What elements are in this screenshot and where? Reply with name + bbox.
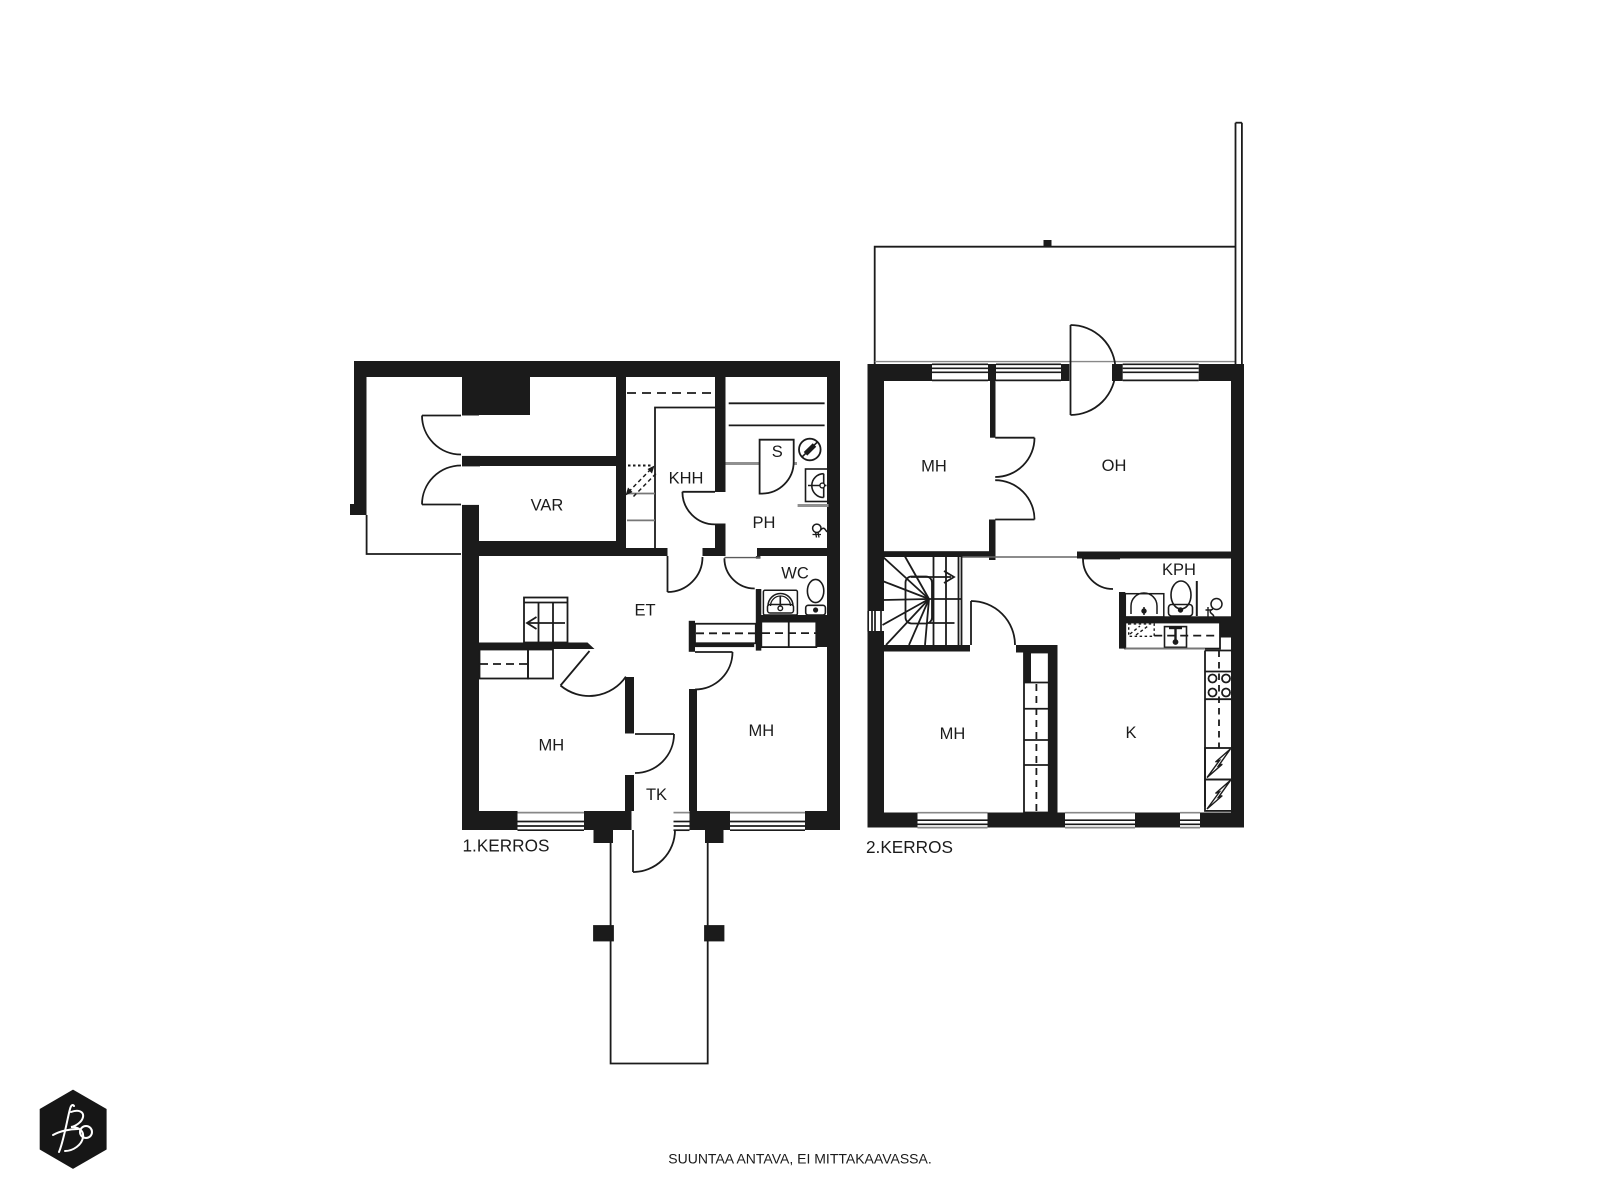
svg-text:OH: OH [1102,457,1127,475]
svg-text:MH: MH [748,722,774,740]
svg-text:S: S [772,443,783,461]
svg-text:TK: TK [646,786,667,804]
svg-text:MH: MH [538,737,564,755]
svg-text:SUUNTAA ANTAVA, EI MITTAKAAVAS: SUUNTAA ANTAVA, EI MITTAKAAVASSA. [668,1151,931,1167]
svg-text:WC: WC [781,565,809,583]
svg-text:ET: ET [634,602,655,620]
svg-text:2.KERROS: 2.KERROS [866,837,953,857]
svg-text:KHH: KHH [669,470,704,488]
svg-text:KPH: KPH [1162,561,1196,579]
svg-text:VAR: VAR [531,497,564,515]
svg-text:MH: MH [940,725,966,743]
svg-text:MH: MH [921,458,947,476]
svg-text:PH: PH [753,514,776,532]
svg-text:1.KERROS: 1.KERROS [463,836,550,856]
svg-text:K: K [1125,724,1136,742]
